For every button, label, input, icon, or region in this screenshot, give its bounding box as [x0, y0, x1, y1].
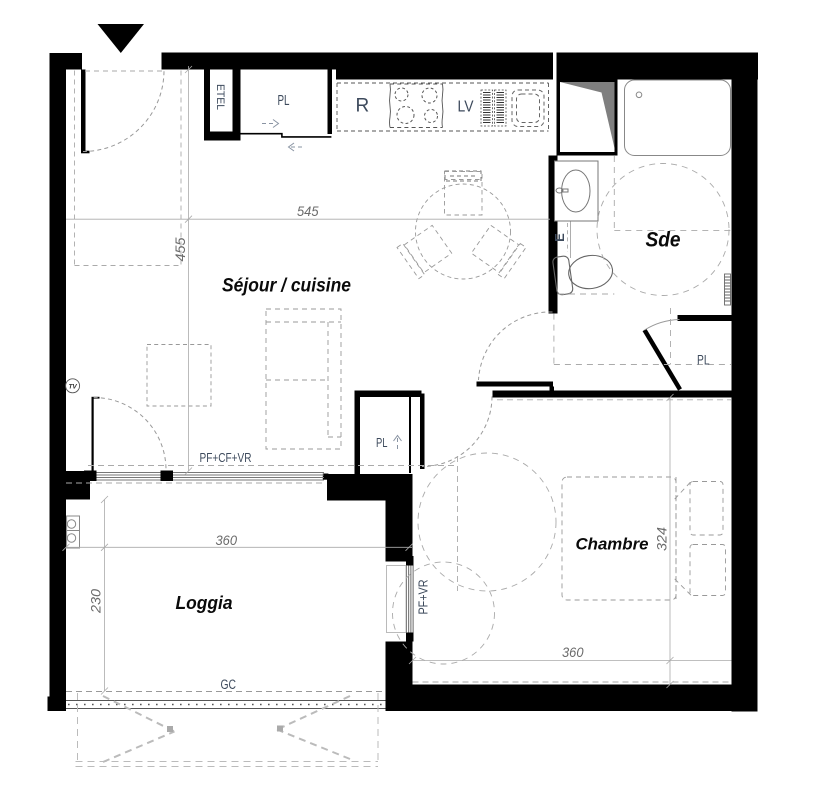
svg-text:Chambre: Chambre [576, 536, 649, 554]
svg-text:324: 324 [654, 527, 670, 551]
svg-text:PL: PL [376, 436, 388, 450]
svg-text:Sde: Sde [646, 229, 681, 252]
svg-text:R: R [356, 96, 370, 117]
svg-text:Séjour / cuisine: Séjour / cuisine [222, 275, 351, 297]
svg-text:ETEL: ETEL [214, 84, 226, 110]
svg-text:PL: PL [278, 92, 290, 109]
svg-text:545: 545 [297, 203, 319, 219]
svg-text:LV: LV [458, 99, 474, 116]
svg-text:PF+CF+VR: PF+CF+VR [200, 451, 252, 465]
svg-text:PL: PL [697, 353, 710, 368]
svg-text:GC: GC [221, 677, 237, 692]
svg-text:PF+VR: PF+VR [417, 580, 431, 615]
svg-text:TV: TV [68, 383, 77, 390]
svg-text:E: E [552, 233, 567, 242]
svg-text:230: 230 [88, 589, 104, 614]
svg-text:Loggia: Loggia [176, 592, 233, 613]
svg-text:360: 360 [216, 532, 238, 548]
svg-text:455: 455 [172, 237, 188, 261]
svg-text:360: 360 [562, 644, 584, 660]
